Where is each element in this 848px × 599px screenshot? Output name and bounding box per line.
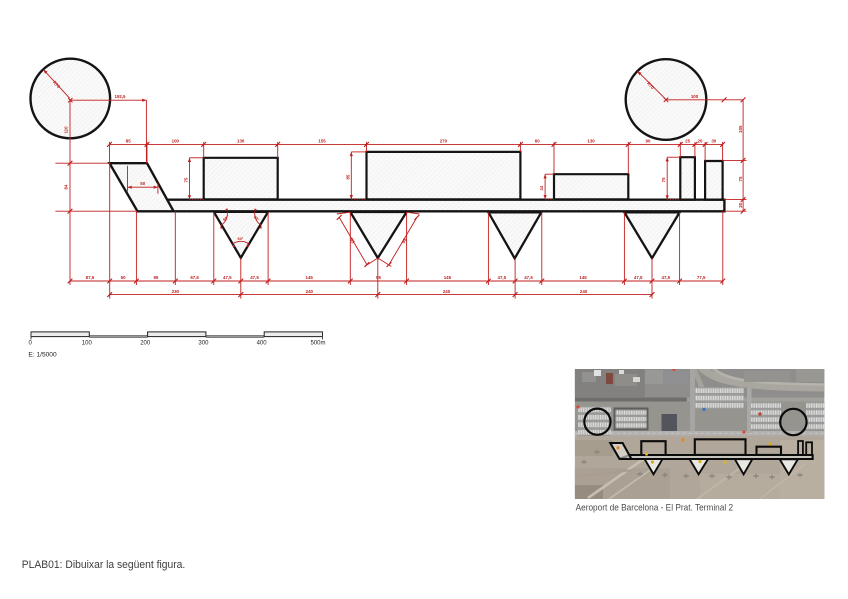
svg-text:20: 20 — [738, 202, 743, 207]
svg-text:25: 25 — [685, 139, 690, 144]
svg-text:100: 100 — [691, 94, 699, 99]
svg-text:47,5: 47,5 — [524, 275, 533, 280]
svg-text:90: 90 — [646, 139, 651, 144]
svg-text:50: 50 — [140, 181, 145, 186]
svg-text:145: 145 — [579, 275, 587, 280]
svg-text:240: 240 — [306, 289, 314, 294]
svg-text:400: 400 — [257, 341, 268, 347]
svg-text:110: 110 — [63, 126, 68, 134]
svg-text:75: 75 — [661, 177, 666, 182]
svg-text:PLAB01: Dibuixar la següent fi: PLAB01: Dibuixar la següent figura. — [22, 559, 186, 571]
svg-text:47,5: 47,5 — [250, 275, 259, 280]
svg-text:75: 75 — [738, 176, 743, 181]
svg-text:47,5: 47,5 — [634, 275, 643, 280]
svg-text:105: 105 — [738, 125, 743, 133]
svg-text:44: 44 — [539, 185, 544, 190]
svg-text:155: 155 — [318, 139, 326, 144]
svg-text:67,5: 67,5 — [190, 275, 199, 280]
svg-text:E: 1/5000: E: 1/5000 — [28, 351, 57, 358]
svg-text:47,5: 47,5 — [223, 275, 232, 280]
svg-text:95: 95 — [376, 275, 381, 280]
svg-text:240: 240 — [580, 289, 588, 294]
svg-text:85: 85 — [345, 174, 350, 179]
svg-text:300: 300 — [198, 341, 209, 347]
svg-text:95: 95 — [153, 275, 158, 280]
svg-text:30: 30 — [711, 139, 716, 144]
svg-text:145: 145 — [306, 275, 314, 280]
svg-text:87,5: 87,5 — [86, 275, 95, 280]
svg-text:130: 130 — [237, 139, 245, 144]
svg-text:47,5: 47,5 — [498, 275, 507, 280]
svg-text:85: 85 — [126, 139, 131, 144]
svg-text:270: 270 — [440, 139, 448, 144]
svg-text:130: 130 — [587, 139, 595, 144]
svg-text:Aeroport de Barcelona - El Pra: Aeroport de Barcelona - El Prat. Termina… — [576, 503, 734, 514]
svg-text:240: 240 — [443, 289, 451, 294]
svg-text:200: 200 — [140, 341, 151, 347]
svg-text:100: 100 — [172, 139, 180, 144]
svg-text:47,5: 47,5 — [662, 275, 671, 280]
svg-text:60°: 60° — [237, 236, 243, 241]
svg-text:75: 75 — [184, 177, 189, 182]
svg-text:77,5: 77,5 — [697, 275, 706, 280]
svg-text:500m: 500m — [310, 341, 325, 347]
svg-text:100: 100 — [82, 341, 93, 347]
svg-text:230: 230 — [172, 289, 180, 294]
svg-text:50: 50 — [121, 275, 126, 280]
svg-text:60: 60 — [535, 139, 540, 144]
svg-text:20: 20 — [698, 139, 703, 144]
svg-text:145: 145 — [444, 275, 452, 280]
svg-text:84: 84 — [63, 184, 68, 189]
svg-text:192,5: 192,5 — [115, 94, 127, 99]
